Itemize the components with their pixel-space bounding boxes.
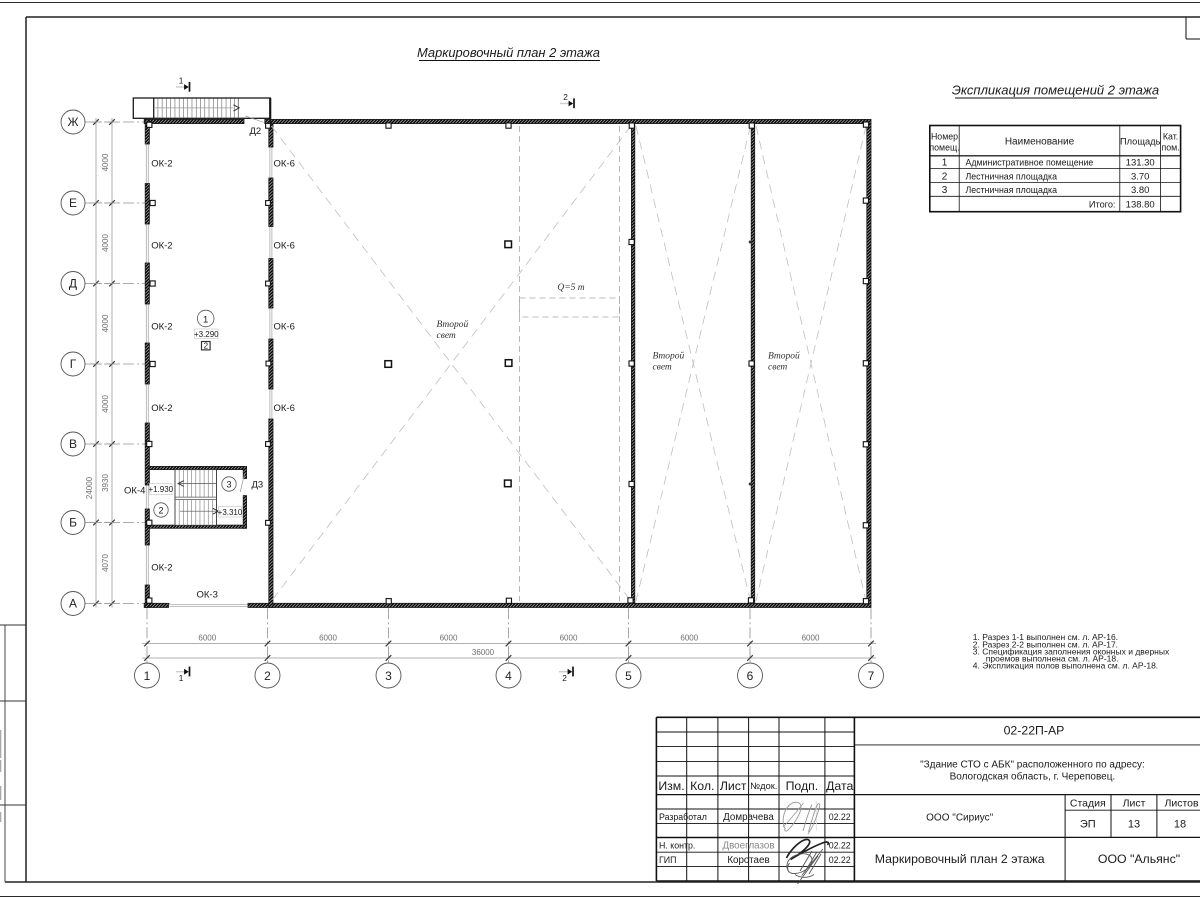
svg-text:Второй: Второй [768,351,800,362]
svg-text:2: 2 [204,341,209,350]
svg-text:138.80: 138.80 [1126,200,1155,211]
svg-text:Стадия: Стадия [1070,798,1106,810]
svg-text:ОК-3: ОК-3 [197,590,218,601]
svg-text:Разработал: Разработал [659,812,707,822]
svg-text:2: 2 [264,669,271,683]
svg-text:ГИП: ГИП [659,855,676,865]
svg-text:Д2: Д2 [250,126,262,137]
svg-text:6000: 6000 [440,634,458,643]
svg-text:Лист: Лист [720,779,747,793]
svg-text:Площадь: Площадь [1120,137,1161,147]
svg-text:№док.: №док. [750,781,777,791]
svg-text:+1.930: +1.930 [148,485,173,494]
svg-text:+3.310: +3.310 [218,508,243,517]
svg-text:Маркировочный план 2 этажа: Маркировочный план 2 этажа [417,45,600,60]
svg-text:4000: 4000 [101,395,110,413]
svg-text:ОК-6: ОК-6 [274,403,295,414]
svg-text:Подп.: Подп. [786,779,819,793]
svg-text:+3.290: +3.290 [194,330,219,339]
svg-text:4000: 4000 [101,153,110,171]
svg-text:02.22: 02.22 [829,855,851,865]
svg-text:Домрачева: Домрачева [723,812,774,823]
svg-text:Лист: Лист [1123,798,1146,810]
svg-text:А: А [69,597,77,611]
svg-text:ОК-2: ОК-2 [151,159,172,170]
svg-text:36000: 36000 [472,648,495,657]
svg-text:Д: Д [69,277,77,291]
svg-text:4: 4 [505,669,512,683]
svg-text:3.70: 3.70 [1131,171,1150,182]
svg-text:6000: 6000 [319,634,337,643]
svg-text:ОК-6: ОК-6 [274,159,295,170]
svg-text:ОК-2: ОК-2 [151,403,172,414]
svg-text:ОК-4: ОК-4 [124,486,145,497]
svg-text:Итого:: Итого: [1089,200,1116,210]
svg-text:3.80: 3.80 [1131,185,1150,196]
svg-text:02.22: 02.22 [829,812,851,822]
svg-text:7: 7 [868,669,875,683]
svg-text:Дата: Дата [826,779,853,793]
svg-text:Экспликация помещений 2 этажа: Экспликация помещений 2 этажа [952,83,1159,98]
svg-text:свет: свет [653,363,672,373]
svg-text:24000: 24000 [85,476,94,499]
svg-text:Листов: Листов [1164,798,1199,810]
svg-text:В: В [69,437,77,451]
svg-text:3: 3 [942,185,948,196]
svg-text:1: 1 [203,314,208,325]
svg-text:пом.: пом. [1162,143,1180,153]
svg-text:3930: 3930 [101,474,110,492]
svg-text:Ж: Ж [67,115,78,129]
svg-text:1: 1 [144,669,151,683]
svg-text:Д3: Д3 [252,480,264,491]
svg-text:131.30: 131.30 [1126,157,1155,168]
svg-text:Г: Г [70,357,77,371]
svg-text:2: 2 [563,92,568,102]
svg-text:ООО "Сириус": ООО "Сириус" [926,812,994,823]
svg-text:4000: 4000 [101,314,110,332]
svg-text:Наименование: Наименование [1005,137,1075,148]
svg-text:18: 18 [1174,818,1186,830]
svg-text:"Здание СТО с АБК" расположенн: "Здание СТО с АБК" расположенного по адр… [920,760,1145,771]
svg-text:2: 2 [942,171,948,182]
svg-text:6: 6 [747,669,754,683]
svg-text:свет: свет [768,363,787,373]
svg-text:ОК-2: ОК-2 [151,562,172,573]
svg-text:Маркировочный план 2 этажа: Маркировочный план 2 этажа [875,852,1045,866]
svg-text:ОК-6: ОК-6 [274,241,295,252]
svg-text:Б: Б [69,516,77,530]
svg-text:4. Экспликация полов выполнена: 4. Экспликация полов выполнена см. л. АР… [973,661,1158,671]
svg-text:Номер: Номер [931,132,958,142]
svg-text:6000: 6000 [198,634,216,643]
svg-text:Вологодская область, г. Черепо: Вологодская область, г. Череповец. [950,771,1116,783]
svg-text:5: 5 [625,669,632,683]
svg-text:ОК-2: ОК-2 [151,241,172,252]
svg-text:Административное помещение: Административное помещение [966,157,1094,167]
svg-text:Q=5 т: Q=5 т [557,283,584,293]
svg-text:1: 1 [942,157,948,168]
svg-text:4000: 4000 [101,234,110,252]
svg-text:Кат.: Кат. [1163,132,1178,142]
svg-text:02-22П-АР: 02-22П-АР [1004,724,1065,738]
svg-text:Кол.: Кол. [690,779,714,793]
svg-text:2: 2 [562,673,567,683]
svg-text:Лестничная площадка: Лестничная площадка [966,171,1058,181]
svg-text:6000: 6000 [560,634,578,643]
svg-text:Е: Е [69,196,77,210]
svg-text:1: 1 [179,75,184,85]
svg-text:ОК-6: ОК-6 [274,322,295,333]
svg-text:Второй: Второй [653,351,685,362]
svg-text:2: 2 [158,506,163,516]
svg-text:6000: 6000 [680,634,698,643]
svg-text:свет: свет [437,331,456,341]
svg-text:Двоеглазов: Двоеглазов [722,841,774,852]
svg-text:Второй: Второй [437,319,469,330]
svg-text:3: 3 [226,480,231,490]
svg-text:ОК-2: ОК-2 [151,322,172,333]
svg-text:ЭП: ЭП [1080,818,1096,830]
svg-text:4070: 4070 [101,554,110,572]
svg-text:Изм.: Изм. [658,779,684,793]
svg-text:13: 13 [1128,818,1140,830]
svg-text:Н. контр.: Н. контр. [659,841,695,851]
svg-text:3: 3 [385,669,392,683]
svg-text:02.22: 02.22 [829,841,851,851]
svg-text:Лестничная площадка: Лестничная площадка [966,185,1058,195]
svg-text:1: 1 [179,673,184,683]
svg-text:ООО "Альянс": ООО "Альянс" [1098,852,1180,866]
svg-text:помещ.: помещ. [929,143,959,153]
svg-text:6000: 6000 [802,634,820,643]
svg-text:Коротаев: Коротаев [727,855,769,866]
